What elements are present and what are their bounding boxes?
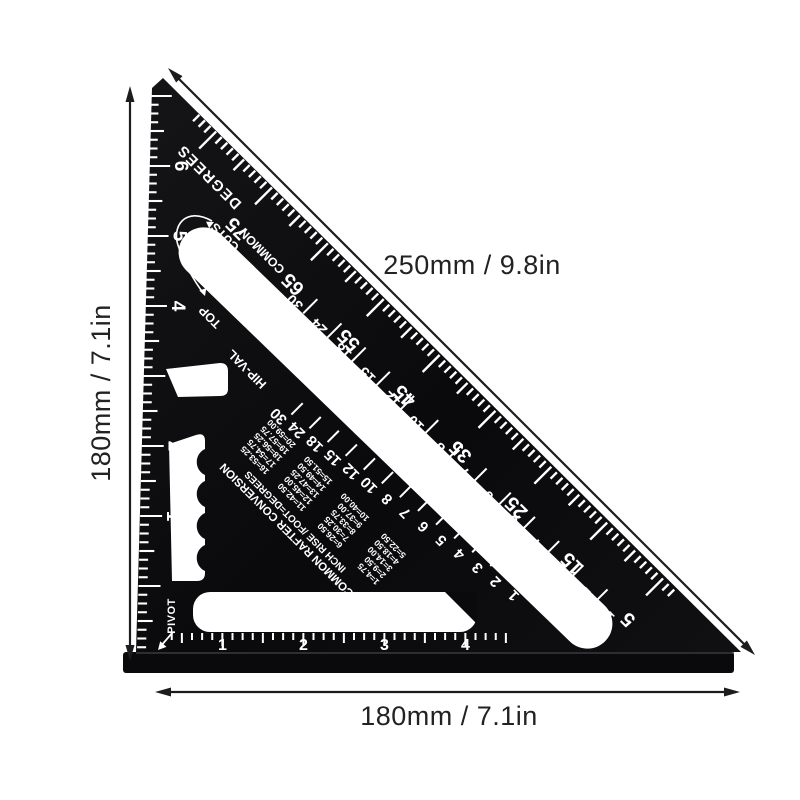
square-flange bbox=[123, 652, 734, 673]
left-ruler-number: 3 bbox=[165, 371, 186, 382]
left-ruler-number: 4 bbox=[167, 301, 188, 312]
bottom-dim-arrow-left bbox=[155, 688, 171, 697]
bottom-ruler-number: 2 bbox=[299, 637, 308, 654]
pivot-label: PIVOT bbox=[166, 598, 178, 634]
bottom-ruler-number: 4 bbox=[461, 637, 470, 654]
left-dimension-label: 180mm / 7.1in bbox=[86, 304, 116, 482]
bottom-dimension-label: 180mm / 7.1in bbox=[360, 701, 538, 731]
bottom-slot bbox=[193, 592, 477, 632]
product-photo: 756555453525155 30241815121087654321 302… bbox=[0, 0, 800, 800]
bottom-ruler-number: 1 bbox=[218, 637, 227, 654]
speed-square-scene: 756555453525155 30241815121087654321 302… bbox=[0, 0, 800, 800]
hypotenuse-dimension-label: 250mm / 9.8in bbox=[383, 250, 561, 280]
left-dim-arrow-up bbox=[126, 86, 135, 102]
bottom-ruler-number: 3 bbox=[380, 637, 389, 654]
bottom-dim-arrow-right bbox=[724, 688, 740, 697]
left-ruler-number: 1 bbox=[162, 511, 183, 522]
left-ruler-number: 5 bbox=[169, 231, 190, 242]
left-ruler-number: 2 bbox=[164, 441, 185, 452]
square-body bbox=[136, 78, 741, 652]
